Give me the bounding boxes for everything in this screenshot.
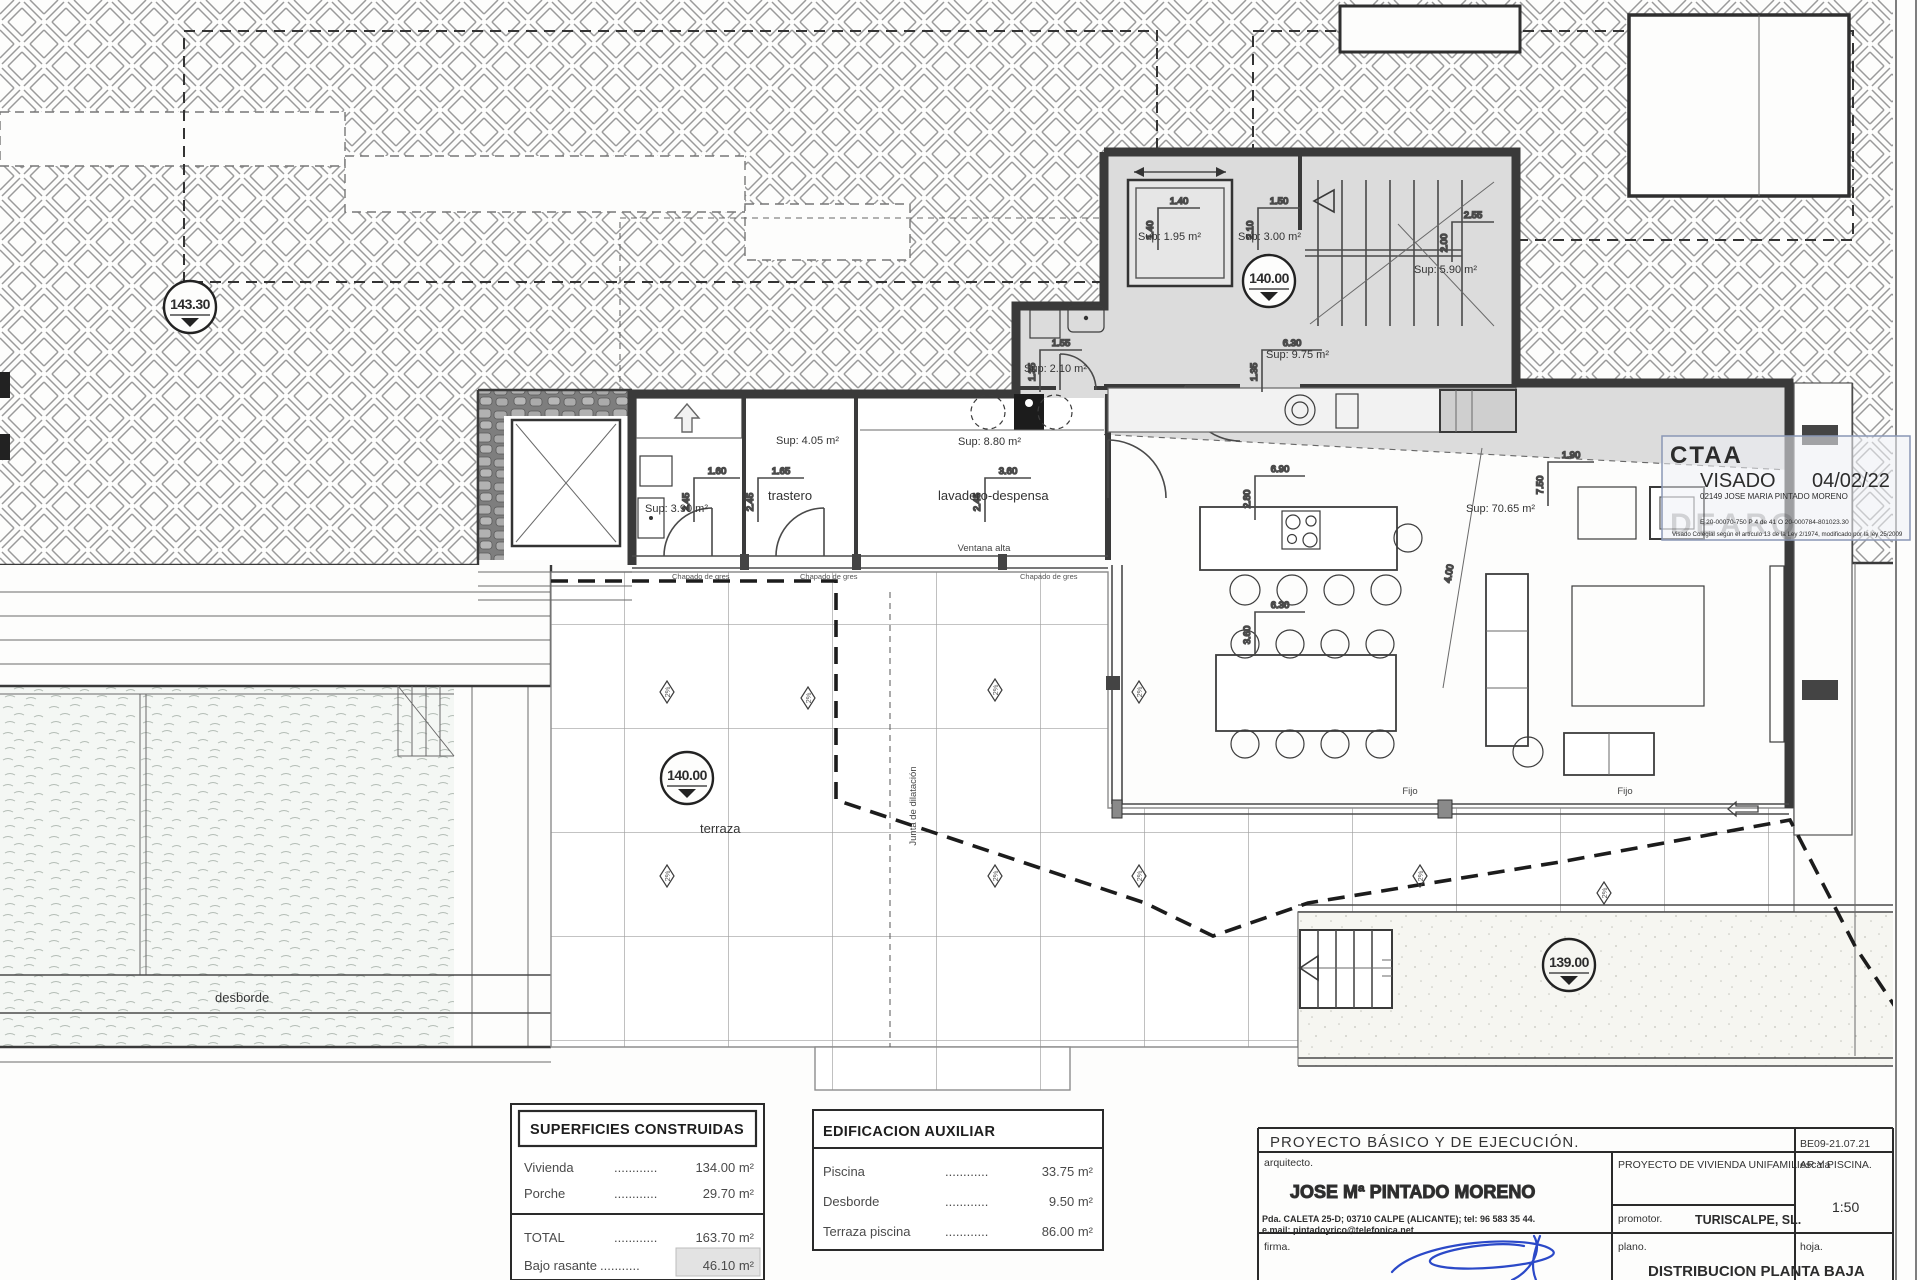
dim-lavadero-w: 3.60 (999, 466, 1018, 477)
sup-pasillo: Sup: 9.75 m² (1266, 349, 1329, 361)
row-value: 9.50 m² (1049, 1194, 1094, 1209)
slope-2pct: 2% (1135, 870, 1144, 881)
dim-estar-h: 7.50 (1535, 476, 1546, 495)
dim-ascensor-w: 1.40 (1170, 196, 1189, 207)
sup-bath: Sup: 3.90 m² (645, 503, 708, 515)
dim-trastero-w: 1.65 (772, 466, 791, 477)
arquitecto-name: JOSE Mª PINTADO MORENO (1290, 1182, 1535, 1202)
firma-label: firma. (1264, 1241, 1290, 1253)
elevator (1128, 167, 1232, 286)
sup-trastero: Sup: 4.05 m² (776, 435, 839, 447)
project-title: PROYECTO BÁSICO Y DE EJECUCIÓN. (1270, 1134, 1579, 1151)
row-label: Terraza piscina (823, 1224, 911, 1239)
dim-bath-w: 1.60 (708, 466, 727, 477)
plano-label: plano. (1618, 1241, 1647, 1253)
hoja-label: hoja. (1800, 1241, 1823, 1253)
row-dots: ............ (614, 1186, 657, 1201)
dining-set (1216, 630, 1396, 758)
pool: desborde (0, 686, 551, 1062)
sup-aseo: Sup: 2.10 m² (1024, 363, 1087, 375)
bajo-value: 46.10 m² (703, 1258, 755, 1273)
visado-stamp: DEARQ CTAA VISADO 04/02/22 02149 JOSE MA… (1650, 436, 1910, 541)
dim-comedor-h: 3.60 (1242, 626, 1253, 645)
stool (1324, 575, 1354, 605)
level-value-upper: 143.30 (170, 296, 211, 312)
escala-label: escala (1800, 1159, 1831, 1171)
project-code: BE09-21.07.21 (1800, 1138, 1870, 1150)
row-value: 29.70 m² (703, 1186, 755, 1201)
row-value: 86.00 m² (1042, 1224, 1094, 1239)
level-marker-140-terrace: 140.00 (661, 752, 713, 804)
dim-pasillo-h: 1.35 (1249, 363, 1260, 382)
auxiliar-table: EDIFICACION AUXILIAR Piscina ...........… (813, 1110, 1103, 1250)
arquitecto-address: Pda. CALETA 25-D; 03710 CALPE (ALICANTE)… (1262, 1214, 1535, 1224)
dim-diagonal: 4.00 (1443, 564, 1457, 584)
level-value-lower: 139.00 (1549, 954, 1590, 970)
slope-2pct: 2% (991, 870, 1000, 881)
sup-vestibulo: Sup: 3.00 m² (1238, 231, 1301, 243)
slope-2pct: 2% (1600, 887, 1609, 898)
bajo-label: Bajo rasante (524, 1258, 597, 1273)
arquitecto-label: arquitecto. (1264, 1157, 1313, 1169)
row-label: Piscina (823, 1164, 866, 1179)
dim-salon-w: 6.90 (1271, 464, 1290, 475)
bajo-dots: ........... (600, 1258, 640, 1273)
total-dots: ............ (614, 1230, 657, 1245)
row-dots: ............ (945, 1224, 988, 1239)
kitchen-island (1200, 507, 1422, 605)
stool (1371, 575, 1401, 605)
stamp-org: CTAA (1670, 442, 1743, 469)
signature (1392, 1236, 1554, 1280)
terraza-label: terraza (700, 821, 741, 836)
promotor-name: TURISCALPE, SL. (1695, 1213, 1801, 1227)
slope-2pct: 2% (991, 684, 1000, 695)
junta-dilatacion-label: Junta de dilatación (908, 766, 919, 845)
dim-comedor-w: 6.30 (1271, 600, 1290, 611)
sup-escalera: Sup: 5.90 m² (1414, 264, 1477, 276)
dim-trastero-h: 2.45 (745, 493, 756, 512)
slope-2pct: 2% (1135, 686, 1144, 697)
plan-sheet: desborde terraza Junta de dilatación (0, 0, 1920, 1280)
lower-terrace (1298, 905, 1920, 1066)
row-label: Porche (524, 1186, 565, 1201)
dim-pasillo-w: 6.30 (1283, 338, 1302, 349)
fijo-label-2: Fijo (1617, 786, 1632, 797)
sup-lavadero: Sup: 8.80 m² (958, 436, 1021, 448)
dim-aseo-w: 1.55 (1052, 338, 1071, 349)
fijo-label-1: Fijo (1402, 786, 1417, 797)
total-label: TOTAL (524, 1230, 565, 1245)
ventana-alta-label: Ventana alta (958, 543, 1012, 554)
dim-estar-w: 1.90 (1562, 450, 1581, 461)
slope-2pct: 2% (663, 870, 672, 881)
sheet-edge (1893, 0, 1920, 1280)
title-block: PROYECTO BÁSICO Y DE EJECUCIÓN. BE09-21.… (1258, 1128, 1893, 1280)
level-value-main: 140.00 (667, 767, 708, 783)
row-value: 134.00 m² (695, 1160, 754, 1175)
proyecto-desc: PROYECTO DE VIVIENDA UNIFAMILIAR Y PISCI… (1618, 1159, 1872, 1171)
row-label: Desborde (823, 1194, 879, 1209)
stamp-legal: Visado Colegial según el artículo 13 de … (1672, 531, 1903, 538)
sup-salon: Sup: 70.65 m² (1466, 503, 1535, 515)
desborde-label: desborde (215, 990, 269, 1005)
slope-2pct: 2% (663, 686, 672, 697)
stamp-colegiado: 02149 JOSE MARIA PINTADO MORENO (1700, 492, 1848, 501)
total-value: 163.70 m² (695, 1230, 754, 1245)
superficies-table: SUPERFICIES CONSTRUIDAS Vivienda .......… (511, 1104, 764, 1280)
dim-escalera-h: 2.00 (1439, 234, 1450, 253)
stamp-visado: VISADO (1700, 470, 1776, 492)
arquitecto-email: e.mail: pintadoyrico@telefonica.net (1262, 1225, 1414, 1235)
row-value: 33.75 m² (1042, 1164, 1094, 1179)
row-dots: ............ (945, 1194, 988, 1209)
porch (478, 390, 632, 560)
row-dots: ............ (945, 1164, 988, 1179)
level-marker-143: 143.30 (164, 281, 216, 333)
escala-value: 1:50 (1832, 1199, 1859, 1215)
level-marker-139: 139.00 (1543, 939, 1595, 991)
superficies-title: SUPERFICIES CONSTRUIDAS (530, 1122, 744, 1138)
dim-escalera-w: 2.55 (1464, 210, 1483, 221)
lavadero-label: lavadero-despensa (938, 488, 1049, 503)
dim-salon-h: 2.80 (1242, 490, 1253, 509)
dim-vestibulo-w: 1.50 (1270, 196, 1289, 207)
row-dots: ............ (614, 1160, 657, 1175)
floor-plan-canvas: desborde terraza Junta de dilatación (0, 0, 1920, 1280)
plano-name: DISTRIBUCION PLANTA BAJA (1648, 1263, 1865, 1280)
stool (1230, 575, 1260, 605)
chapado-label-3: Chapado de gres (1020, 572, 1078, 581)
exterior-stair (1300, 930, 1392, 1008)
trastero-label: trastero (768, 488, 812, 503)
level-value-main: 140.00 (1249, 270, 1290, 286)
stamp-ref: E 20-00070-750 P 4 de 41 O 20-000784-801… (1700, 519, 1849, 526)
row-label: Vivienda (524, 1160, 574, 1175)
sup-ascensor: Sup: 1.95 m² (1138, 231, 1201, 243)
stamp-date: 04/02/22 (1812, 470, 1890, 492)
level-marker-140-hall: 140.00 (1243, 255, 1295, 307)
slope-2pct: 2% (804, 692, 813, 703)
promotor-label: promotor. (1618, 1213, 1662, 1225)
slope-2pct: 2% (1416, 870, 1425, 881)
auxiliar-title: EDIFICACION AUXILIAR (823, 1124, 995, 1140)
